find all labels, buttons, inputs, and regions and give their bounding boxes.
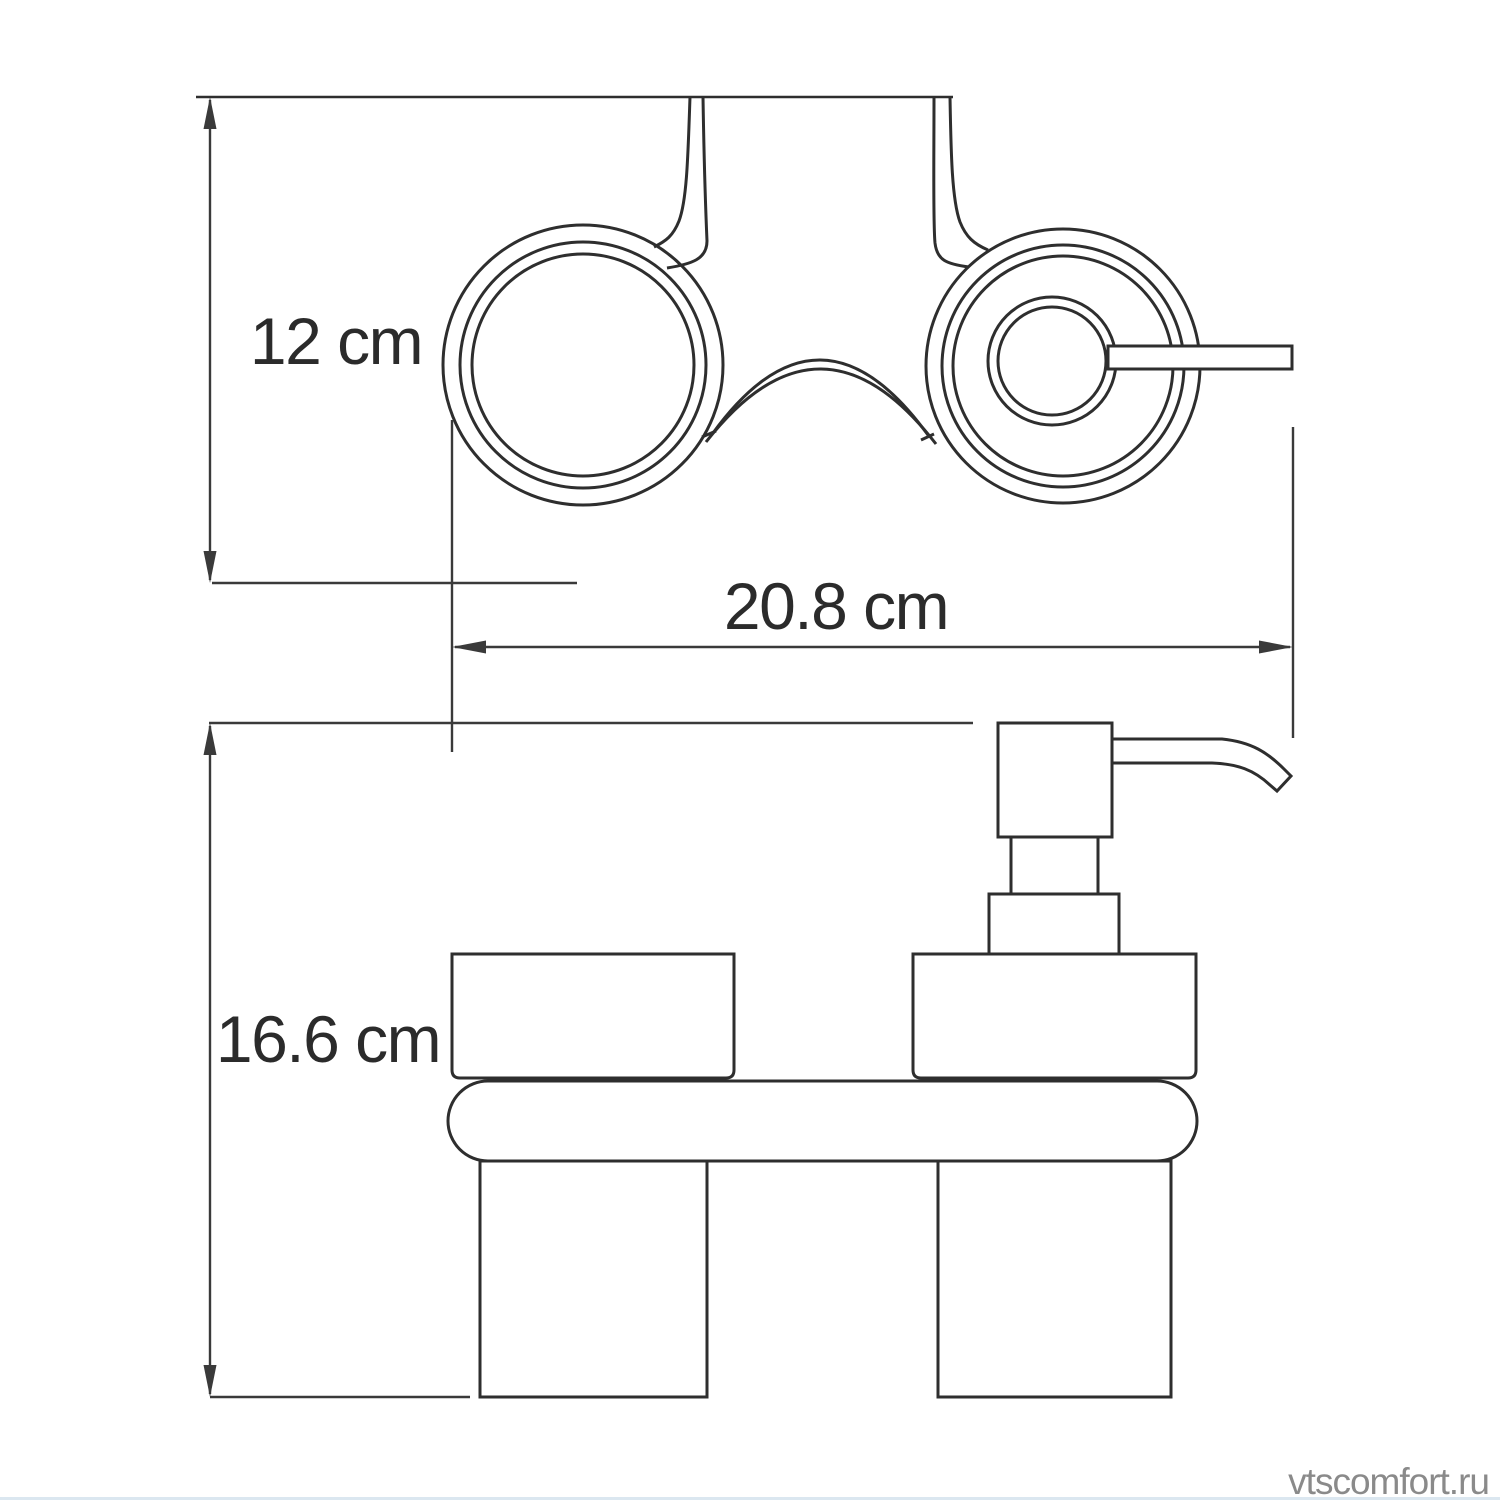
left-ring-middle-circle [460, 242, 706, 488]
web-arch-lower-line [706, 369, 936, 444]
dimension-width: 20.8 cm [452, 420, 1293, 752]
dispenser-bottle [913, 954, 1196, 1078]
width-label: 20.8 cm [724, 569, 948, 643]
pump-spout-front [1112, 739, 1291, 791]
depth-label: 12 cm [250, 304, 422, 378]
pump-neck [1011, 837, 1098, 894]
spout-top-view [1108, 346, 1292, 369]
left-neck-outer-line [654, 97, 690, 247]
right-neck-outer-line [950, 97, 988, 250]
glass-upper [452, 954, 734, 1078]
pump-head [998, 723, 1112, 837]
dispenser-neck-outer-circle [988, 297, 1116, 425]
watermark-text: vtscomfort.ru [1288, 1461, 1489, 1500]
holder-shelf [448, 1081, 1197, 1161]
width-arrow-right [1259, 641, 1293, 654]
front-view [448, 723, 1291, 1397]
depth-arrow-up [204, 97, 217, 129]
width-arrow-left [452, 641, 486, 654]
depth-arrow-down [204, 551, 217, 583]
height-label: 16.6 cm [216, 1002, 440, 1076]
top-view [196, 97, 1292, 505]
left-cup-lower [480, 1161, 707, 1397]
web-arch-upper-line [713, 360, 928, 435]
technical-drawing: 12 cm 20.8 cm 16.6 cm vtscomfort.ru [0, 0, 1500, 1500]
left-ring-inner-circle [472, 254, 694, 476]
height-arrow-up [204, 723, 217, 755]
pump-collar [989, 894, 1119, 954]
dispenser-neck-inner-circle [998, 307, 1106, 415]
dimension-depth: 12 cm [204, 97, 578, 583]
drawing-canvas: 12 cm 20.8 cm 16.6 cm vtscomfort.ru [0, 0, 1500, 1500]
height-arrow-down [204, 1365, 217, 1397]
right-cup-lower [938, 1161, 1171, 1397]
left-ring-outer-circle [443, 225, 723, 505]
